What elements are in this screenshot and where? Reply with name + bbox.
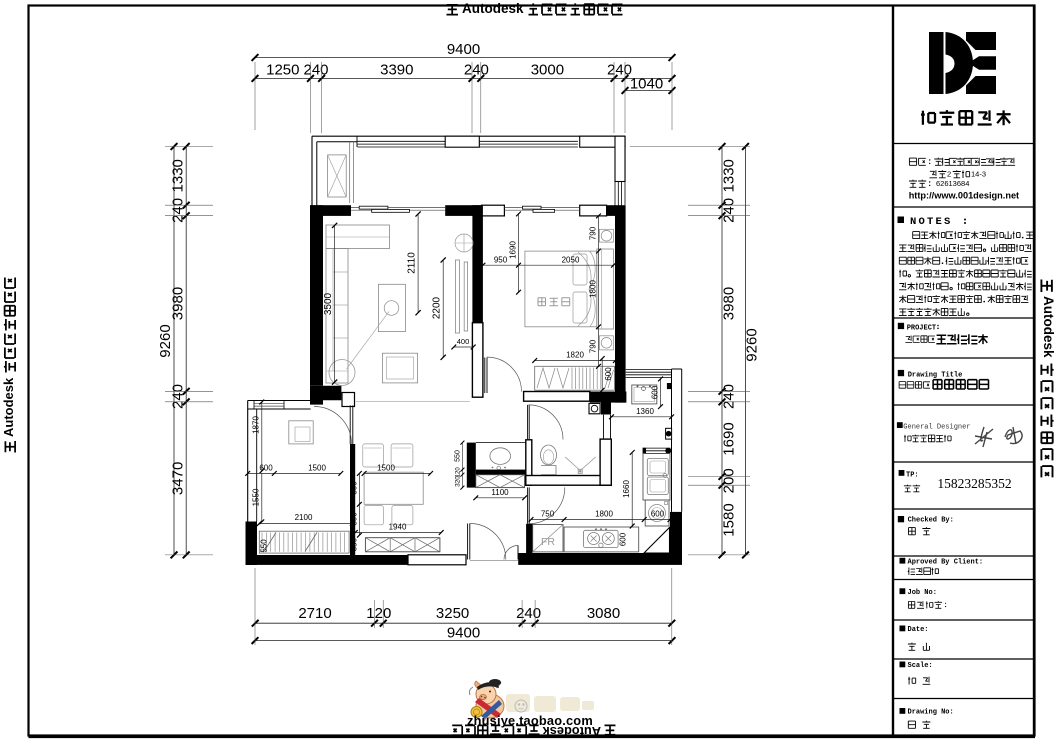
svg-text:2200: 2200 bbox=[432, 296, 443, 319]
svg-text:2110: 2110 bbox=[407, 252, 418, 274]
svg-text:1040: 1040 bbox=[630, 76, 663, 93]
svg-text:9260: 9260 bbox=[157, 324, 174, 357]
svg-text:3080: 3080 bbox=[587, 605, 620, 622]
svg-text:1250: 1250 bbox=[266, 62, 299, 79]
svg-text:1550: 1550 bbox=[252, 488, 261, 506]
svg-text:1940: 1940 bbox=[389, 523, 407, 532]
svg-text:General Designer: General Designer bbox=[903, 423, 970, 431]
svg-text:PROJECT: PROJECT bbox=[907, 324, 936, 332]
svg-text:950: 950 bbox=[494, 256, 508, 265]
svg-text:3470: 3470 bbox=[170, 462, 187, 495]
svg-text:1660: 1660 bbox=[622, 480, 631, 498]
svg-text:Checked By:: Checked By: bbox=[908, 517, 954, 525]
svg-text:600: 600 bbox=[651, 385, 660, 399]
svg-text:http://www.001design.net: http://www.001design.net bbox=[909, 191, 1019, 201]
svg-text:200: 200 bbox=[721, 468, 738, 493]
svg-text:Date:: Date: bbox=[908, 626, 929, 634]
svg-text:600: 600 bbox=[604, 367, 613, 381]
svg-text:FR: FR bbox=[541, 536, 555, 548]
svg-text:240: 240 bbox=[464, 62, 489, 79]
svg-text:Job No:: Job No: bbox=[908, 589, 937, 597]
svg-text:1800: 1800 bbox=[595, 510, 613, 519]
svg-text:600: 600 bbox=[651, 510, 665, 519]
svg-text:240: 240 bbox=[607, 62, 632, 79]
svg-text:1360: 1360 bbox=[636, 407, 654, 416]
svg-text:Autodesk: Autodesk bbox=[462, 1, 524, 16]
svg-text:1580: 1580 bbox=[721, 503, 738, 536]
svg-text:9260: 9260 bbox=[744, 328, 761, 361]
svg-text:1100: 1100 bbox=[491, 488, 509, 497]
svg-text:Autodesk: Autodesk bbox=[1041, 296, 1056, 358]
svg-text:NOTES: NOTES bbox=[910, 216, 953, 228]
svg-text:550: 550 bbox=[455, 450, 462, 462]
svg-text:2710: 2710 bbox=[298, 605, 331, 622]
svg-text:240: 240 bbox=[721, 384, 738, 409]
svg-text:62613684: 62613684 bbox=[936, 179, 969, 188]
svg-text:3000: 3000 bbox=[531, 62, 564, 79]
svg-text:400: 400 bbox=[457, 337, 470, 346]
svg-text:550: 550 bbox=[260, 539, 269, 553]
svg-text:Drawing Title: Drawing Title bbox=[908, 371, 963, 379]
svg-text:1500: 1500 bbox=[308, 464, 326, 473]
svg-text:TP:: TP: bbox=[906, 472, 919, 480]
svg-text:1690: 1690 bbox=[509, 241, 518, 259]
svg-text:240: 240 bbox=[516, 605, 541, 622]
svg-text:320: 320 bbox=[455, 476, 462, 487]
svg-text:3390: 3390 bbox=[380, 62, 413, 79]
svg-text:Drawing No:: Drawing No: bbox=[908, 709, 954, 717]
svg-text:120: 120 bbox=[456, 467, 462, 478]
svg-text:240: 240 bbox=[303, 62, 328, 79]
svg-text:2100: 2100 bbox=[295, 513, 313, 522]
svg-text:3980: 3980 bbox=[721, 287, 738, 320]
svg-text:9400: 9400 bbox=[447, 625, 480, 642]
svg-text:15823285352: 15823285352 bbox=[937, 476, 1011, 491]
svg-text:800: 800 bbox=[349, 481, 358, 495]
svg-text:2050: 2050 bbox=[562, 256, 580, 265]
svg-text:1870: 1870 bbox=[252, 416, 261, 434]
svg-text:240: 240 bbox=[170, 198, 187, 223]
svg-text:750: 750 bbox=[541, 510, 555, 519]
svg-text:600: 600 bbox=[259, 464, 273, 473]
svg-text:1800: 1800 bbox=[589, 280, 598, 298]
svg-text:790: 790 bbox=[589, 339, 598, 353]
svg-text:800: 800 bbox=[349, 512, 358, 526]
svg-text:Aproved By Client:: Aproved By Client: bbox=[908, 558, 984, 566]
svg-text:9400: 9400 bbox=[447, 41, 480, 58]
svg-text:240: 240 bbox=[170, 384, 187, 409]
svg-text:3500: 3500 bbox=[323, 292, 334, 315]
svg-text:120: 120 bbox=[366, 605, 391, 622]
svg-text:1330: 1330 bbox=[170, 159, 187, 192]
svg-text:1330: 1330 bbox=[721, 159, 738, 192]
svg-text:14-3: 14-3 bbox=[971, 170, 986, 179]
svg-text:zhusiye.taobao.com: zhusiye.taobao.com bbox=[467, 713, 593, 728]
svg-text:2: 2 bbox=[947, 170, 951, 179]
svg-text:1500: 1500 bbox=[377, 464, 395, 473]
svg-text:240: 240 bbox=[721, 198, 738, 223]
svg-text:600: 600 bbox=[618, 532, 627, 546]
svg-text:790: 790 bbox=[589, 226, 598, 240]
svg-text:3980: 3980 bbox=[170, 287, 187, 320]
svg-text:Scale:: Scale: bbox=[908, 662, 933, 670]
svg-text:1820: 1820 bbox=[566, 351, 584, 360]
svg-text:350: 350 bbox=[349, 537, 358, 551]
svg-text:3250: 3250 bbox=[436, 605, 469, 622]
svg-text:Autodesk: Autodesk bbox=[1, 377, 16, 437]
svg-text:1690: 1690 bbox=[721, 422, 738, 455]
